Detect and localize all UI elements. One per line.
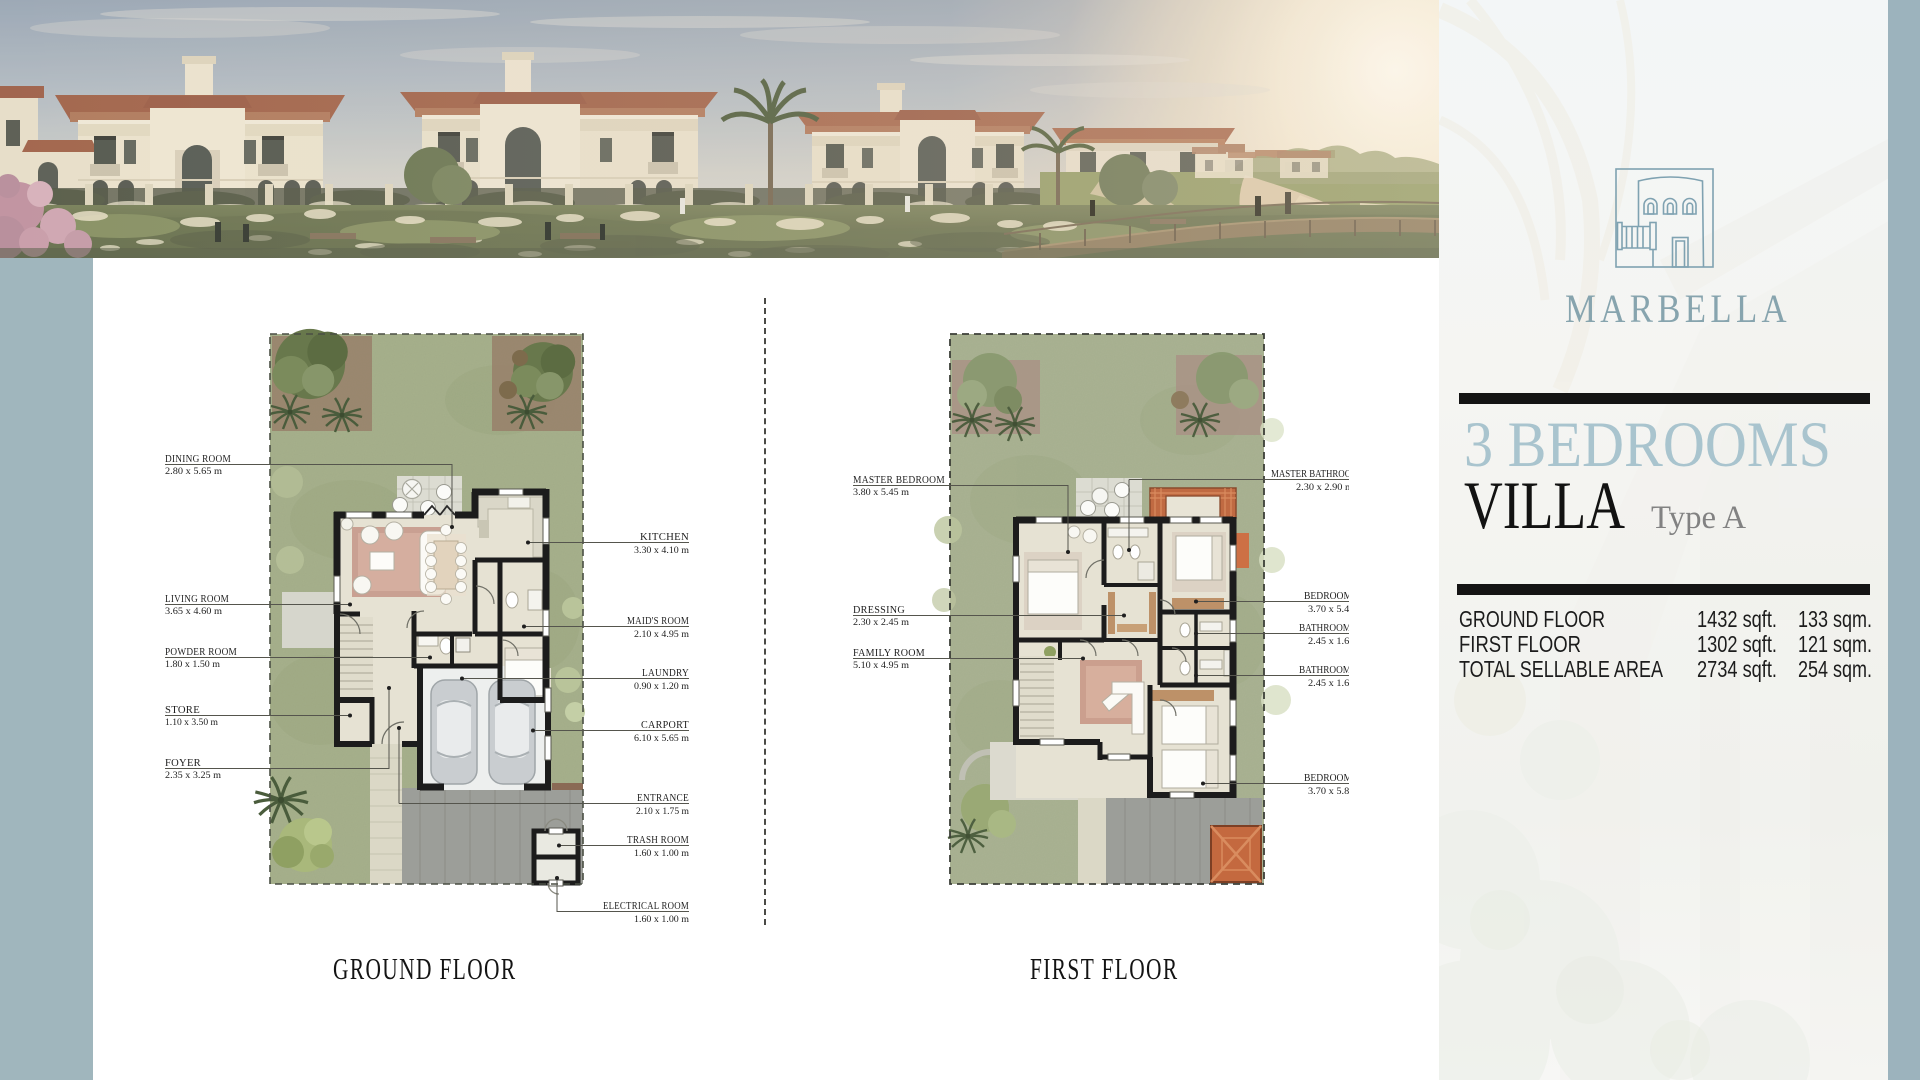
svg-text:1.10 x 3.50 m: 1.10 x 3.50 m (165, 718, 219, 728)
svg-text:LAUNDRY: LAUNDRY (642, 667, 689, 679)
svg-text:5.10 x 4.95 m: 5.10 x 4.95 m (853, 661, 910, 671)
svg-text:BEDROOM: BEDROOM (1304, 772, 1349, 784)
svg-text:STORE: STORE (165, 704, 200, 716)
svg-text:2734 sqft.: 2734 sqft. (1697, 656, 1777, 682)
svg-text:Type A: Type A (1651, 500, 1746, 536)
svg-text:MASTER BATHROOM: MASTER BATHROOM (1271, 468, 1349, 480)
svg-text:POWDER ROOM: POWDER ROOM (165, 646, 237, 658)
svg-text:2.10 x 1.75 m: 2.10 x 1.75 m (636, 807, 690, 817)
svg-text:2.10 x 4.95 m: 2.10 x 4.95 m (634, 630, 690, 640)
svg-text:VILLA: VILLA (1464, 467, 1625, 543)
svg-text:2.30 x 2.90 m: 2.30 x 2.90 m (1296, 483, 1349, 493)
svg-text:TOTAL SELLABLE AREA: TOTAL SELLABLE AREA (1459, 656, 1664, 682)
svg-text:KITCHEN: KITCHEN (640, 531, 689, 543)
svg-text:LIVING ROOM: LIVING ROOM (165, 593, 229, 605)
svg-text:3.80 x 5.45 m: 3.80 x 5.45 m (853, 488, 910, 498)
svg-text:ELECTRICAL ROOM: ELECTRICAL ROOM (603, 900, 689, 912)
svg-text:MARBELLA: MARBELLA (1565, 286, 1791, 331)
svg-text:121 sqm.: 121 sqm. (1798, 631, 1872, 657)
svg-text:1.60 x 1.00 m: 1.60 x 1.00 m (634, 849, 690, 859)
svg-text:2.45 x 1.65 m: 2.45 x 1.65 m (1308, 637, 1349, 647)
svg-text:BATHROOM: BATHROOM (1299, 664, 1349, 676)
svg-text:1.60 x 1.00 m: 1.60 x 1.00 m (634, 915, 690, 925)
svg-text:CARPORT: CARPORT (641, 719, 689, 731)
svg-text:GROUND FLOOR: GROUND FLOOR (1459, 606, 1605, 632)
svg-text:FIRST FLOOR: FIRST FLOOR (1459, 631, 1581, 657)
svg-text:2.35 x 3.25 m: 2.35 x 3.25 m (165, 771, 222, 781)
svg-text:3.30 x 4.10 m: 3.30 x 4.10 m (634, 546, 690, 556)
svg-text:FAMILY ROOM: FAMILY ROOM (853, 647, 925, 659)
svg-text:TRASH ROOM: TRASH ROOM (627, 834, 689, 846)
svg-text:DINING ROOM: DINING ROOM (165, 453, 231, 465)
svg-text:MAID'S ROOM: MAID'S ROOM (627, 615, 689, 627)
svg-text:2.80 x 5.65 m: 2.80 x 5.65 m (165, 467, 223, 477)
svg-text:FOYER: FOYER (165, 757, 201, 769)
svg-text:2.30 x 2.45 m: 2.30 x 2.45 m (853, 618, 910, 628)
svg-text:133 sqm.: 133 sqm. (1798, 606, 1872, 632)
svg-text:ENTRANCE: ENTRANCE (637, 792, 689, 804)
svg-text:BATHROOM: BATHROOM (1299, 622, 1349, 634)
svg-text:0.90 x 1.20 m: 0.90 x 1.20 m (634, 682, 690, 692)
svg-text:2.45 x 1.65 m: 2.45 x 1.65 m (1308, 679, 1349, 689)
svg-text:254 sqm.: 254 sqm. (1798, 656, 1872, 682)
svg-text:1432 sqft.: 1432 sqft. (1697, 606, 1777, 632)
svg-text:6.10 x 5.65 m: 6.10 x 5.65 m (634, 734, 690, 744)
svg-text:1302 sqft.: 1302 sqft. (1697, 631, 1777, 657)
svg-text:BEDROOM: BEDROOM (1304, 590, 1349, 602)
svg-text:3.65 x 4.60 m: 3.65 x 4.60 m (165, 607, 223, 617)
svg-text:3.70 x 5.80 m: 3.70 x 5.80 m (1308, 787, 1349, 797)
svg-text:DRESSING: DRESSING (853, 604, 905, 616)
svg-text:3.70 x 5.45 m: 3.70 x 5.45 m (1308, 605, 1349, 615)
svg-text:MASTER BEDROOM: MASTER BEDROOM (853, 474, 945, 486)
svg-text:1.80 x 1.50 m: 1.80 x 1.50 m (165, 660, 221, 670)
